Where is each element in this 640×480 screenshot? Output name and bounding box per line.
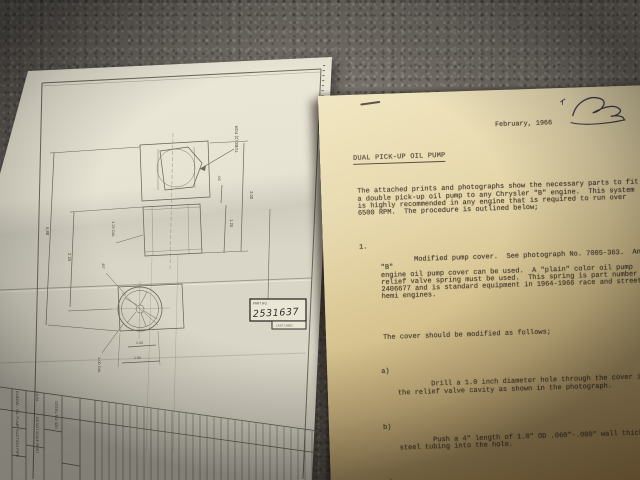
item-text: Modified pump cover. See photograph No. … <box>381 248 640 301</box>
letter-body: The attached prints and photographs show… <box>357 165 640 480</box>
tube-leader-label: TUBE (2) FOR <box>234 126 239 153</box>
material-spec: STEEL NO 420 <box>54 401 59 429</box>
dim-1-25-dia: 1.25 DIA <box>111 221 116 237</box>
blueprint-print: 3.00 6.88 2.25 1.25 1.25 DIA .06 1.50 45… <box>0 57 345 480</box>
photo-scene: 3.00 6.88 2.25 1.25 1.25 DIA .06 1.50 45… <box>0 0 640 480</box>
cover-note: The cover should be modified as follows; <box>362 326 640 343</box>
dim-1-50: 1.50 <box>134 356 141 360</box>
part-title-text: ELBOW - OIL PUMP SUCTION PIPE <box>15 391 20 458</box>
signature-mark <box>556 90 629 132</box>
blueprint-drawing: 3.00 6.88 2.25 1.25 1.25 DIA .06 1.50 45… <box>0 57 345 480</box>
dim-45-deg: 45° <box>101 263 106 269</box>
dim-1-00: 1.00 <box>136 341 143 345</box>
title-block-date: 2-6-64 <box>35 391 39 401</box>
sub-item-label: a) <box>381 369 390 376</box>
do-not-scale-note: DO NOT SCALE PRINT <box>35 417 39 453</box>
dim-1-25: 1.25 <box>229 219 234 228</box>
dim-6-88: 6.88 <box>45 227 50 236</box>
dim-2-25: 2.25 <box>67 253 72 262</box>
list-item-1: 1. Modified pump cover. See photograph N… <box>359 235 640 310</box>
staple-mark <box>360 101 380 106</box>
dim-1-00-dia: 1.00 DIA <box>97 357 102 373</box>
letter-date: February, 1966 <box>495 119 552 129</box>
dim-06: .06 <box>217 175 222 181</box>
intro-paragraph: The attached prints and photographs show… <box>357 179 640 218</box>
blueprint-paper <box>0 57 332 480</box>
sub-item-b: b) Push a 4" length of 1.0" OD .060"-.08… <box>365 415 640 461</box>
item-number: 1. <box>359 244 368 251</box>
letter-title: DUAL PICK-UP OIL PUMP <box>353 152 446 165</box>
dim-3-00: 3.00 <box>249 191 254 200</box>
sub-item-c: c) Braze all the way around the tube on … <box>367 471 640 480</box>
sub-item-label: b) <box>383 424 392 431</box>
sub-item-a: a) Drill a 1.0 inch diameter hole throug… <box>363 360 640 406</box>
sub-item-text: Push a 4" length of 1.0" OD .060"-.080" … <box>400 429 640 453</box>
part-no-label: PART NO. <box>253 302 268 306</box>
letter-document: February, 1966 DUAL PICK-UP OIL PUMP The… <box>318 85 640 480</box>
sub-item-text: Drill a 1.0 inch diameter hole through t… <box>398 374 640 398</box>
last-used-label: LAST USED <box>276 324 293 328</box>
